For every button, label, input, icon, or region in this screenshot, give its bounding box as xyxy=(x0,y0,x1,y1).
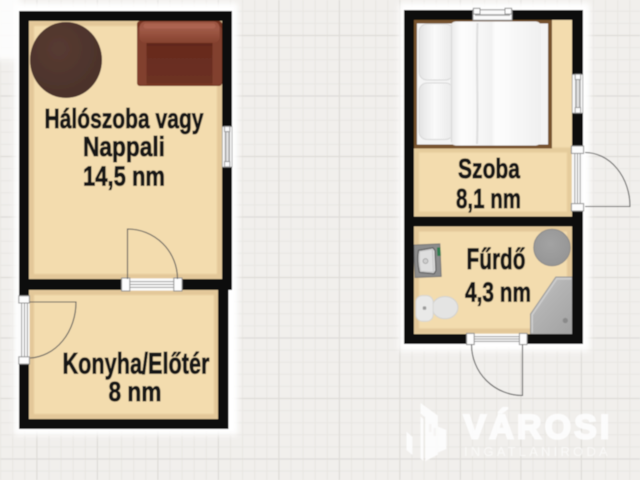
svg-text:8,1 nm: 8,1 nm xyxy=(456,183,521,214)
svg-text:8 nm: 8 nm xyxy=(109,376,162,407)
svg-text:Szoba: Szoba xyxy=(458,153,520,184)
svg-text:VÁROSI: VÁROSI xyxy=(464,409,613,447)
svg-text:INGATLANIRODA: INGATLANIRODA xyxy=(464,444,611,459)
svg-text:Hálószoba vagy: Hálószoba vagy xyxy=(45,103,204,134)
svg-text:4,3 nm: 4,3 nm xyxy=(465,277,531,308)
svg-text:Nappali: Nappali xyxy=(83,131,165,162)
svg-text:Fűrdő: Fűrdő xyxy=(467,243,526,276)
svg-text:14,5 nm: 14,5 nm xyxy=(83,161,165,192)
